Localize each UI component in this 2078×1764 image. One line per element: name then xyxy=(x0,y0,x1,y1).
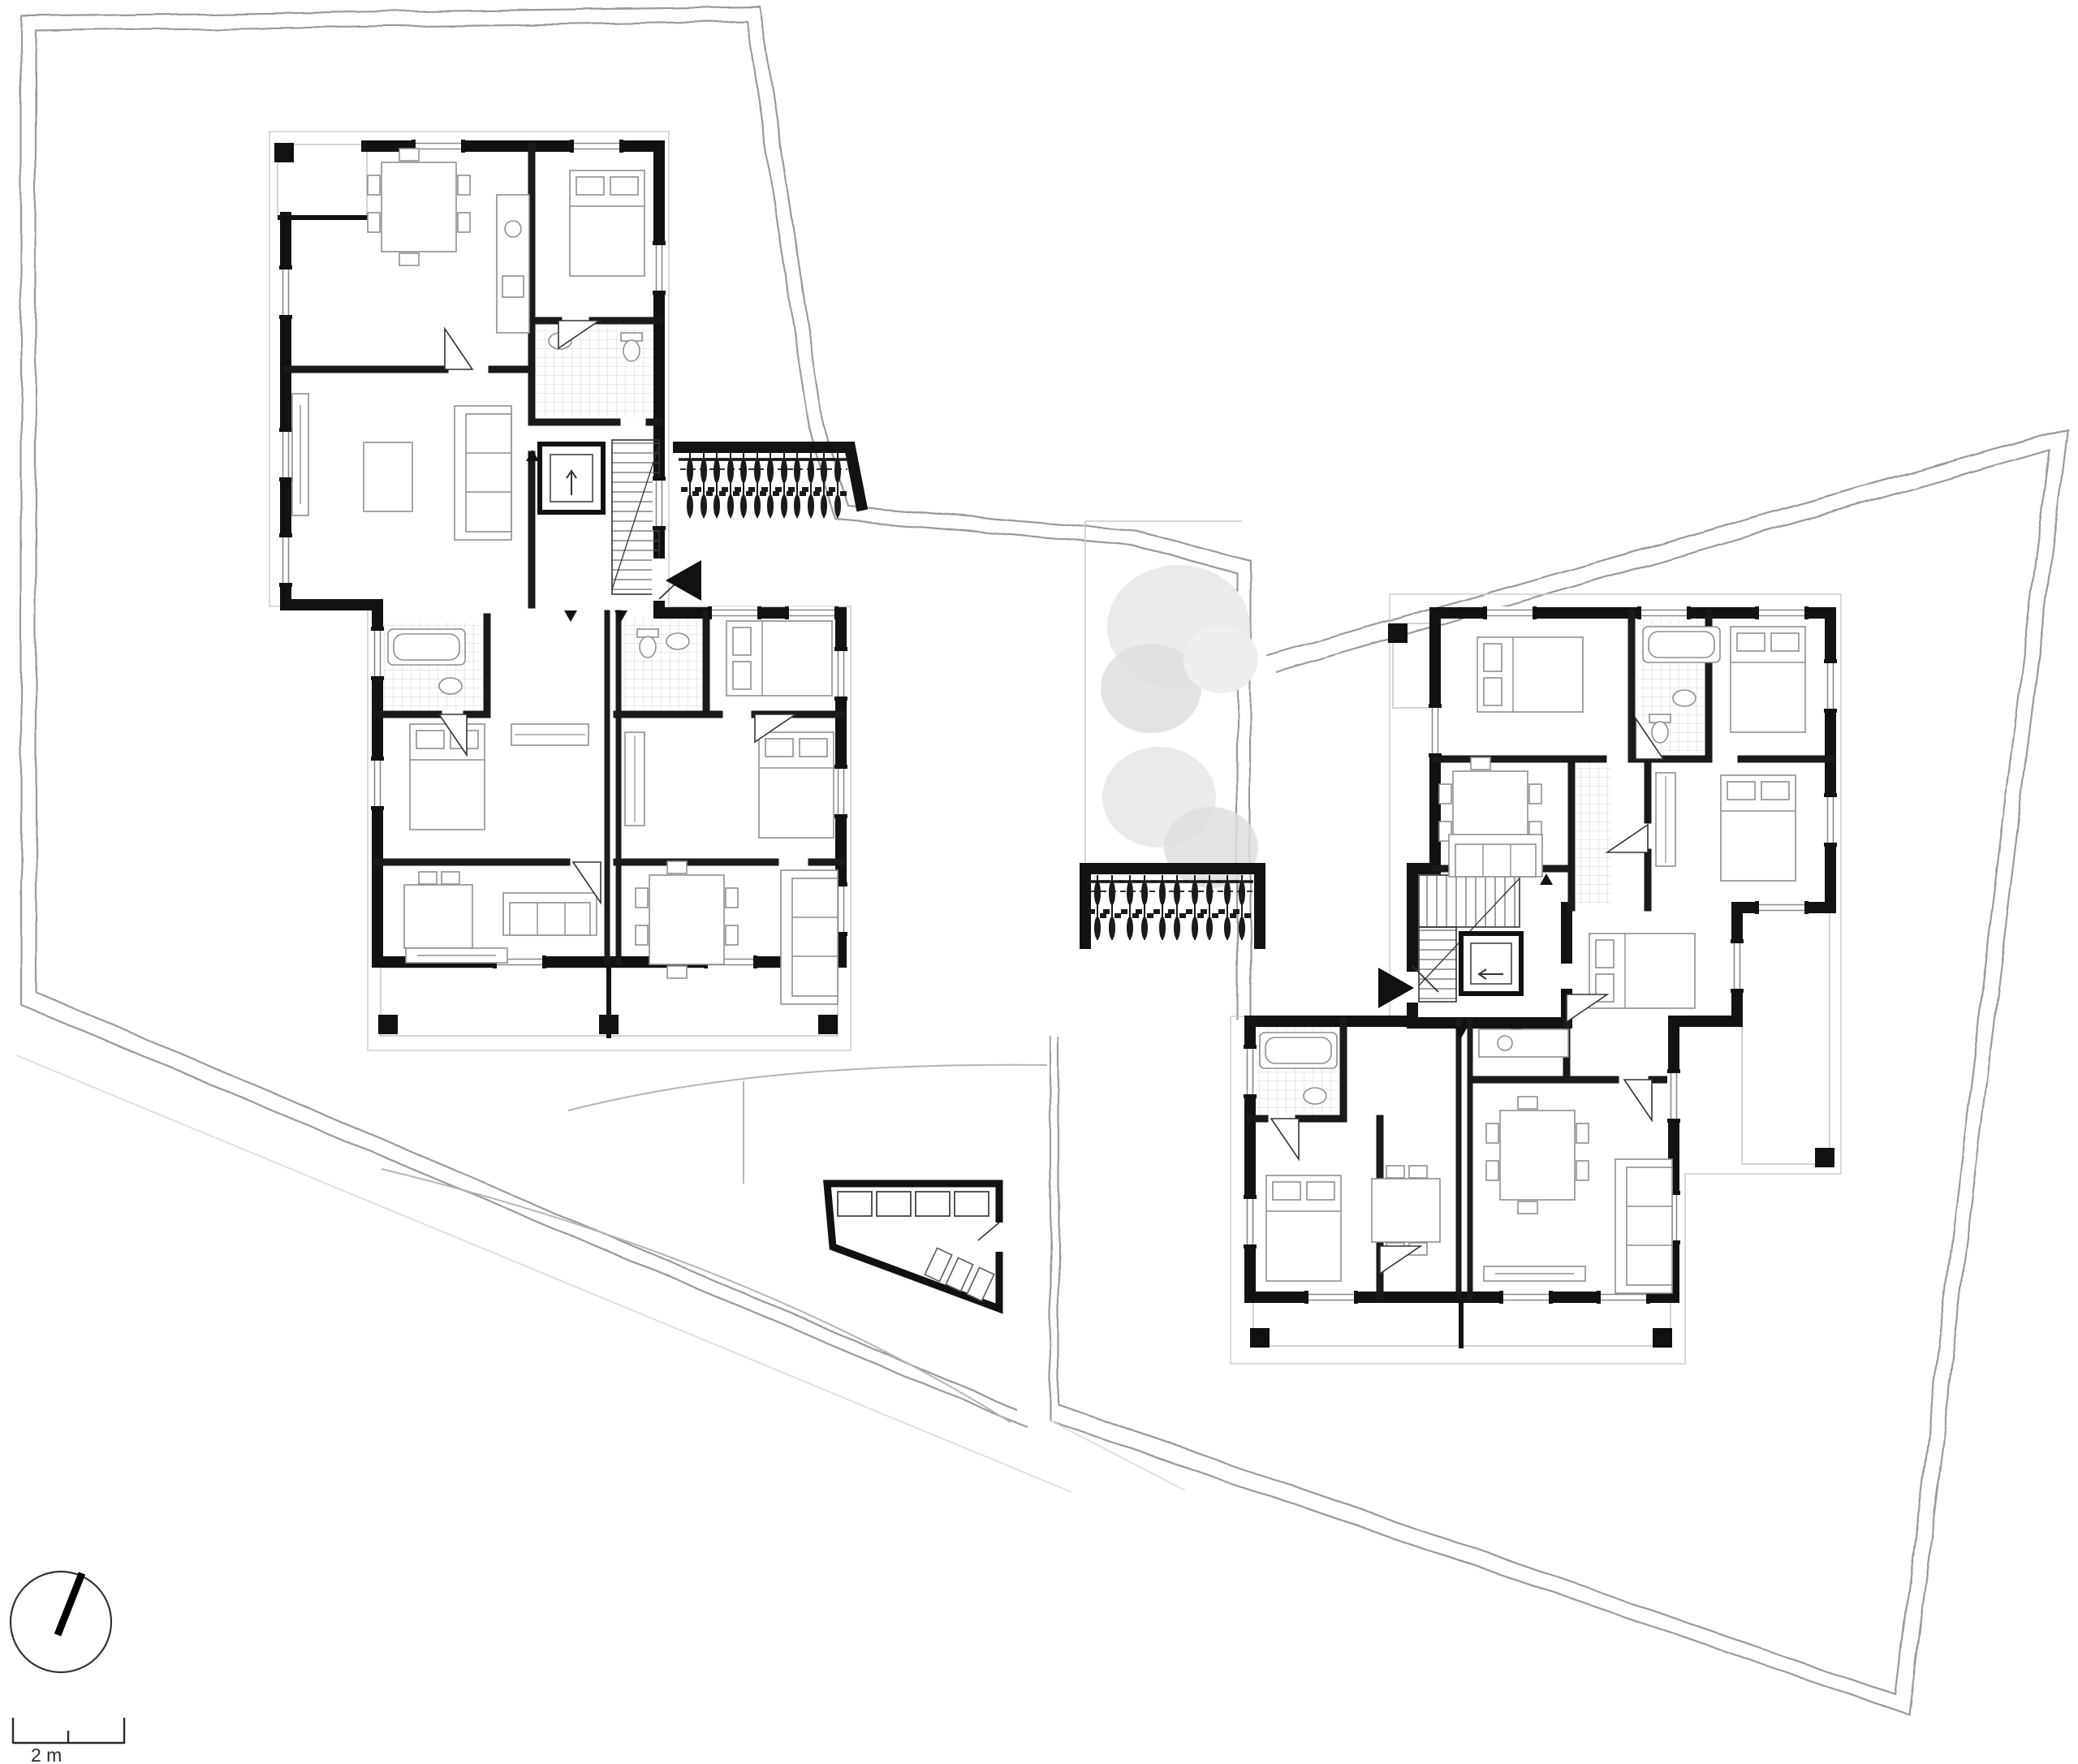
storage-box xyxy=(955,1192,989,1216)
balcony-post-icon xyxy=(1250,1328,1270,1348)
site-plan-sheet: 2 m xyxy=(0,0,2078,1764)
window-icon xyxy=(371,627,384,680)
bicycle-icon xyxy=(759,453,782,518)
bed xyxy=(1731,627,1805,732)
window-icon xyxy=(279,265,292,319)
window-icon xyxy=(1824,659,1837,713)
scale-bar: 2 m xyxy=(13,1718,124,1764)
bicycle-icon xyxy=(1166,875,1188,940)
storage-box xyxy=(916,1192,950,1216)
bed xyxy=(1266,1175,1341,1281)
bicycle-icon xyxy=(786,453,808,518)
sofa xyxy=(455,406,511,540)
bed xyxy=(570,170,645,276)
window-icon xyxy=(570,140,623,153)
window-icon xyxy=(1304,1291,1358,1304)
sofa xyxy=(1449,835,1542,877)
garden-court xyxy=(1085,521,1258,888)
stair-core xyxy=(1419,875,1521,1002)
stairs xyxy=(1419,875,1520,927)
party-wall xyxy=(607,613,619,962)
wardrobe xyxy=(511,724,588,745)
balcony-post-icon xyxy=(1653,1328,1672,1348)
scale-bar-lines xyxy=(13,1718,124,1744)
balcony-post-icon xyxy=(1388,623,1408,643)
window-icon xyxy=(653,477,666,530)
balcony-post-icon xyxy=(274,143,294,162)
balcony-post-icon xyxy=(599,1015,619,1034)
boundary-west-edge xyxy=(21,16,36,1005)
street-edge-faint-2 xyxy=(1050,1421,1185,1490)
bed xyxy=(1477,637,1583,712)
balcony-post-icon xyxy=(818,1015,838,1034)
sofa xyxy=(503,893,597,935)
kitchen-counter xyxy=(497,195,529,333)
bathroom-floor xyxy=(622,618,701,709)
window-icon xyxy=(1667,1069,1680,1123)
window-icon xyxy=(1244,1045,1257,1098)
refuse-shelter xyxy=(827,1184,1004,1309)
floor-plan-drawing: 2 m xyxy=(0,0,2078,1764)
sofa xyxy=(1615,1159,1672,1293)
bicycle-icon xyxy=(719,453,742,518)
window-icon xyxy=(834,647,847,701)
window-icon xyxy=(1637,606,1691,619)
bathtub xyxy=(1643,627,1720,662)
coffee-table xyxy=(364,442,412,511)
window-icon xyxy=(1755,606,1809,619)
windows xyxy=(279,140,847,968)
bathroom-sink xyxy=(1304,1088,1326,1104)
terrace-post-icon xyxy=(1815,1148,1834,1167)
door-swing xyxy=(445,329,472,369)
road-curve-upper xyxy=(568,1065,1047,1111)
exterior-walls xyxy=(286,146,841,962)
storage-box xyxy=(838,1192,872,1216)
door-swing xyxy=(1271,1119,1299,1159)
bicycle-icon xyxy=(1133,875,1156,940)
storage-box xyxy=(877,1192,911,1216)
building-west xyxy=(269,132,851,1050)
bathtub xyxy=(388,629,465,665)
bicycle-icon xyxy=(1119,875,1141,940)
tree-canopy xyxy=(1183,625,1258,693)
elevator xyxy=(1461,934,1521,994)
bicycle-icon xyxy=(826,453,849,518)
bicycle-icon xyxy=(1101,875,1123,940)
entrance-arrow-icon xyxy=(1378,968,1414,1008)
bicycle-icon xyxy=(732,453,755,518)
bed xyxy=(1589,934,1695,1008)
north-arrow xyxy=(11,1572,111,1672)
bathroom-floor xyxy=(1576,764,1611,904)
window-icon xyxy=(1429,704,1442,757)
window-icon xyxy=(1824,793,1837,847)
bathroom-sink xyxy=(666,633,689,649)
bicycle-icon xyxy=(773,453,795,518)
sofa xyxy=(781,870,838,1004)
window-icon xyxy=(708,606,761,619)
sideboard xyxy=(406,948,507,963)
balcony-post-icon xyxy=(378,1015,398,1034)
bathroom-sink xyxy=(1673,690,1696,706)
unit-entry-marker-icon xyxy=(564,610,577,622)
north-needle-icon xyxy=(58,1573,82,1635)
dining-table xyxy=(1486,1097,1589,1214)
dining-table xyxy=(1372,1166,1440,1255)
window-icon xyxy=(412,140,465,153)
dining-table xyxy=(368,149,470,265)
window-icon xyxy=(1244,1195,1257,1249)
kitchen-counter xyxy=(1479,1029,1568,1057)
bicycle-icon xyxy=(746,453,769,518)
sideboard xyxy=(1484,1266,1585,1281)
door-swing xyxy=(1607,825,1648,852)
window-icon xyxy=(653,241,666,295)
wardrobe xyxy=(1656,773,1675,866)
window-icon xyxy=(371,757,384,810)
door-swing xyxy=(1380,1246,1421,1274)
dining-table xyxy=(636,861,738,978)
party-wall xyxy=(1459,1021,1470,1297)
scale-label: 2 m xyxy=(31,1745,62,1764)
window-icon xyxy=(1499,1291,1553,1304)
unit-entry-marker-icon xyxy=(526,450,539,461)
building-east xyxy=(1231,594,1841,1364)
bathtub xyxy=(1260,1033,1337,1068)
bathroom-sink xyxy=(439,678,462,694)
roads-and-paths xyxy=(16,1055,1185,1492)
bed xyxy=(726,621,832,696)
terrace-deck xyxy=(1742,912,1830,1164)
bed xyxy=(410,724,485,830)
bed xyxy=(759,732,834,838)
tv-sideboard xyxy=(292,394,308,515)
window-icon xyxy=(1483,606,1537,619)
window-icon xyxy=(279,428,292,481)
wardrobe xyxy=(625,732,645,826)
window-icon xyxy=(1731,939,1744,993)
window-icon xyxy=(1755,901,1809,914)
bicycle-icon xyxy=(692,453,715,518)
furniture xyxy=(1260,627,1805,1293)
bicycle-icon xyxy=(679,453,701,518)
tree-canopy xyxy=(1164,807,1258,888)
bicycle-icon xyxy=(1151,875,1174,940)
bed xyxy=(1721,775,1796,881)
window-icon xyxy=(834,765,847,818)
entrance-arrow-icon xyxy=(666,560,701,601)
window-icon xyxy=(279,533,292,587)
window-icon xyxy=(785,606,839,619)
stair-core xyxy=(540,440,659,594)
door-swing xyxy=(1624,1080,1652,1120)
bicycle-icon xyxy=(705,453,728,518)
